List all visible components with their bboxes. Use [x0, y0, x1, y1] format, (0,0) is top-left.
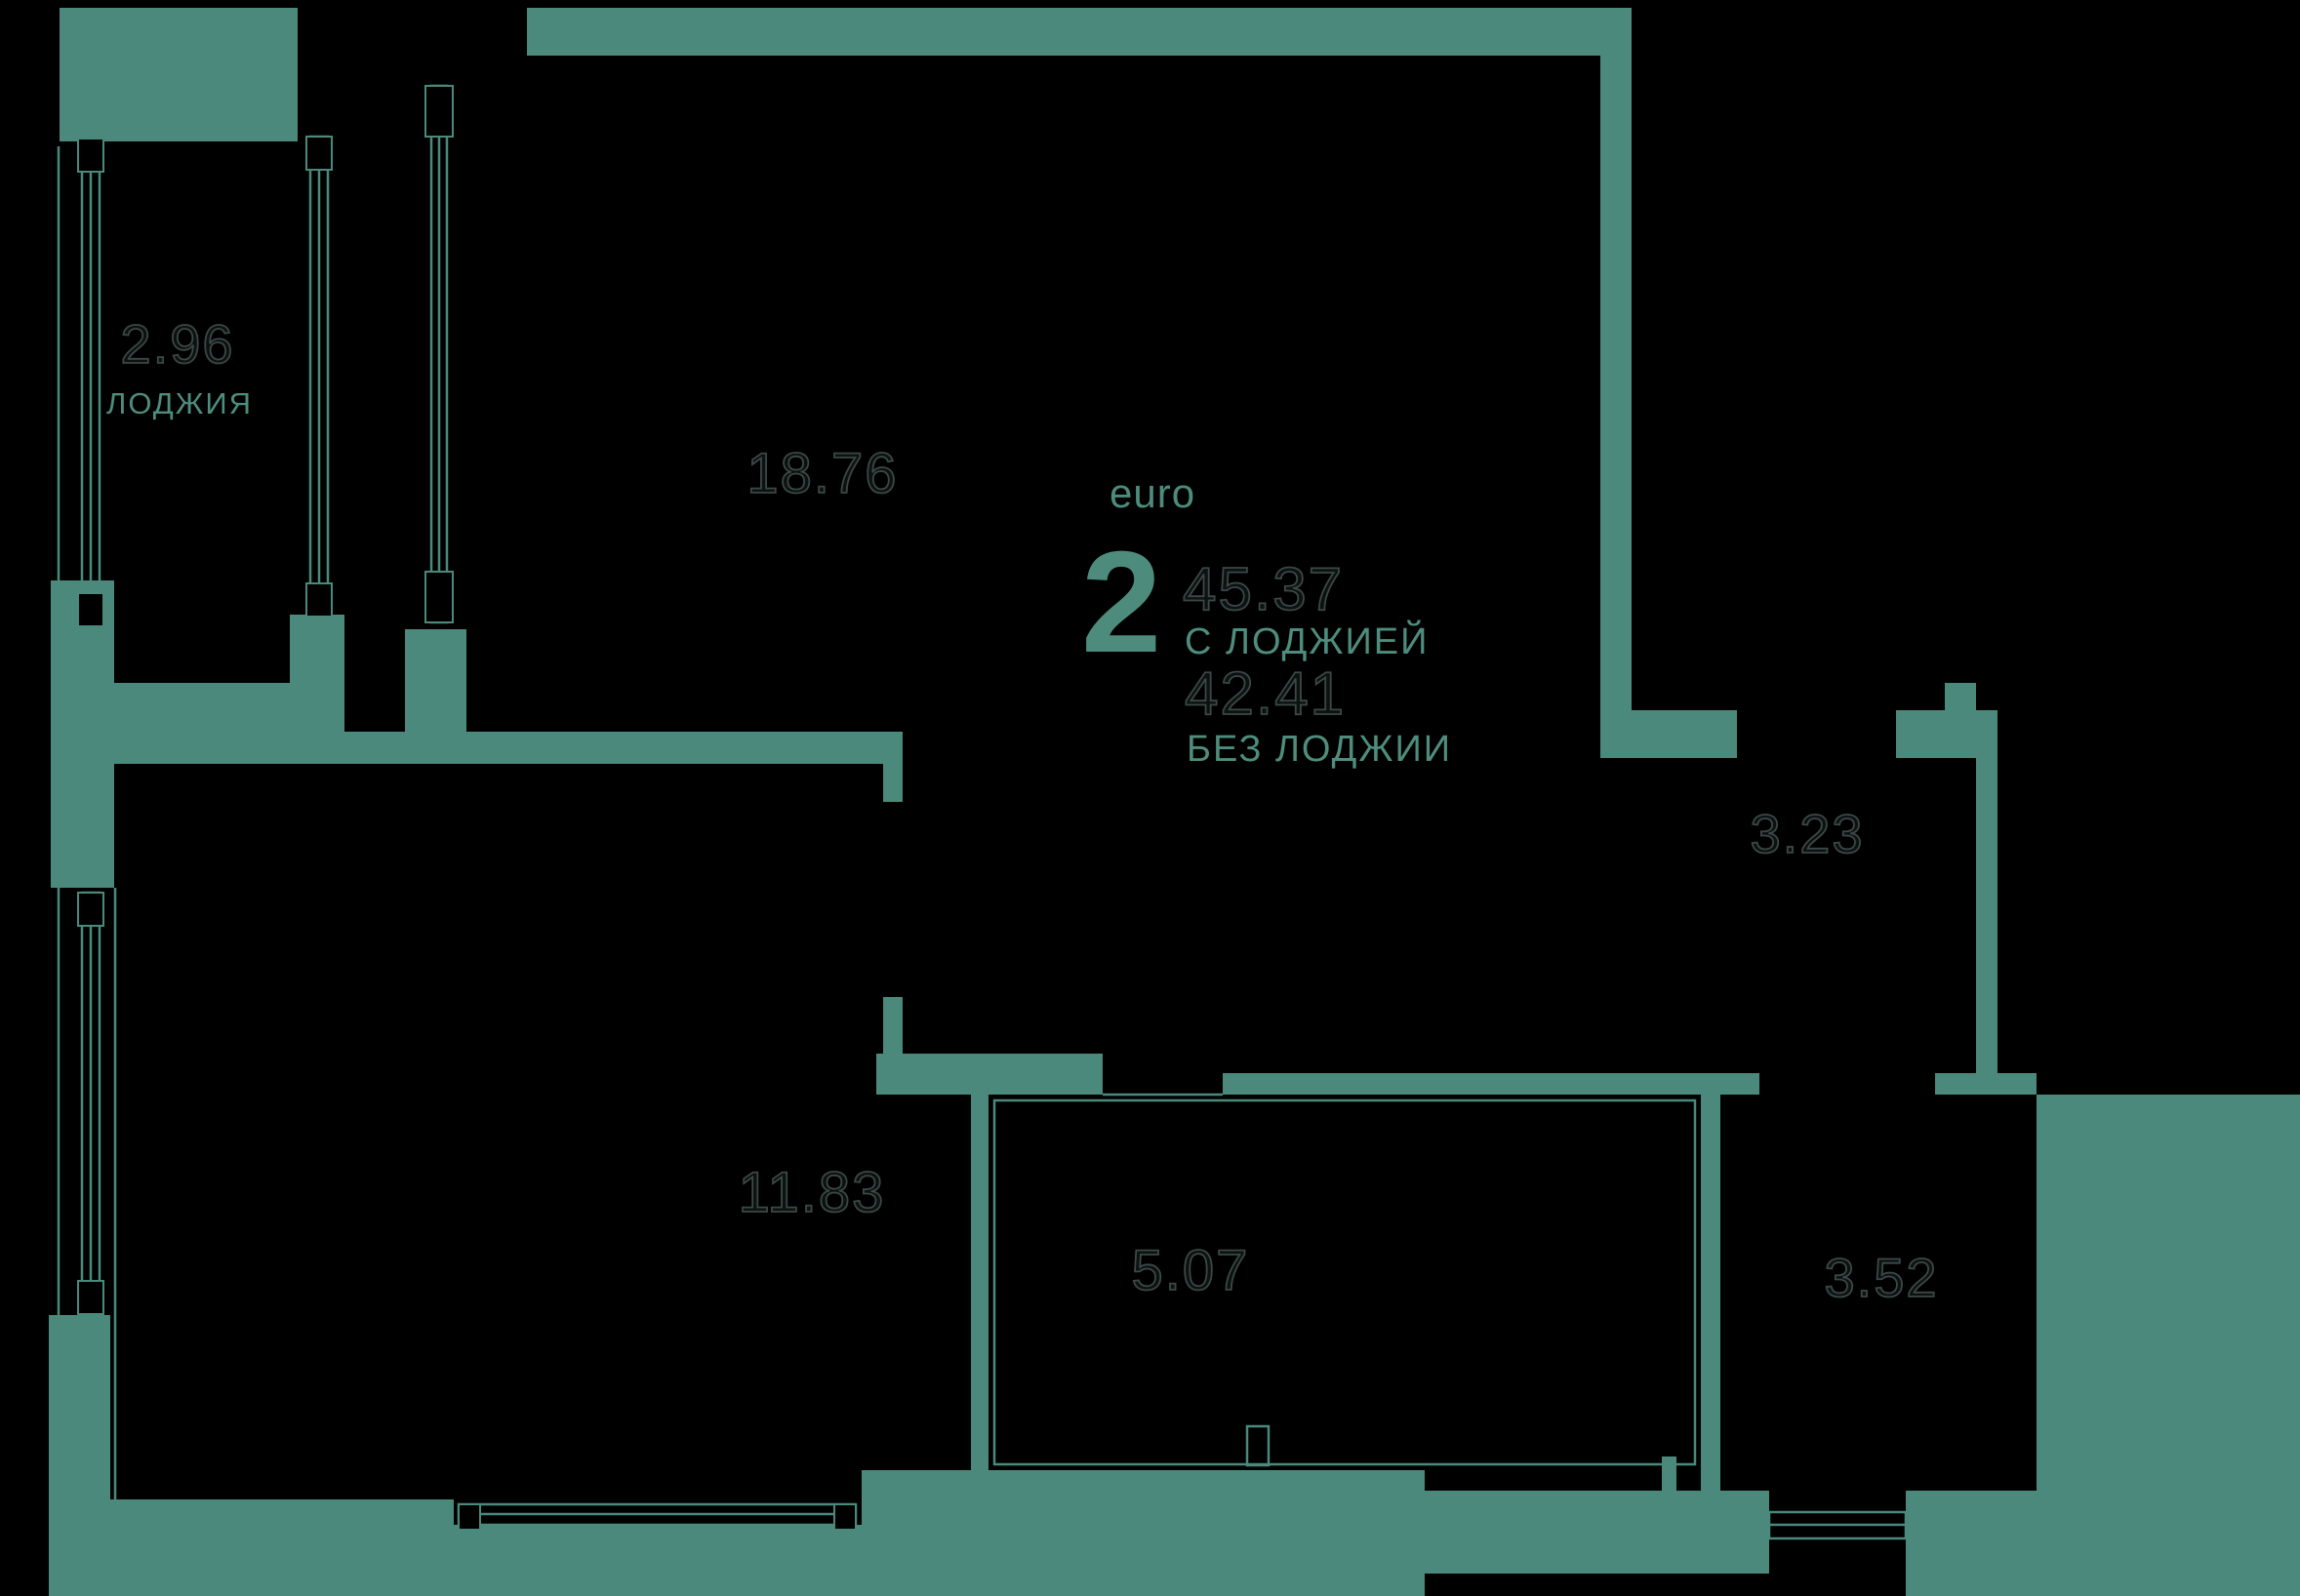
wall	[1976, 710, 1997, 1095]
area-with-loggia: 45.37	[1183, 556, 1344, 623]
window-jamb	[78, 1281, 103, 1314]
wall	[110, 1499, 454, 1596]
loggia-area: 2.96	[121, 313, 235, 375]
bathroom-area: 5.07	[1132, 1239, 1250, 1302]
window-jamb	[306, 137, 332, 170]
window-jamb	[78, 593, 103, 626]
bedroom-area: 11.83	[739, 1161, 886, 1224]
wall	[527, 8, 1632, 56]
wall	[883, 764, 903, 802]
wall	[1701, 1095, 1720, 1491]
hallway-area: 3.23	[1751, 803, 1865, 864]
floor-plan: 2.96 ЛОДЖИЯ 18.76 11.83 5.07 3.23 3.52 e…	[0, 0, 2300, 1596]
plan-background	[0, 0, 2300, 1596]
area-without-loggia: 42.41	[1185, 660, 1346, 728]
rooms-count: 2	[1081, 522, 1161, 683]
wall	[883, 997, 903, 1054]
unit-type-label: euro	[1110, 470, 1195, 516]
wall	[862, 1470, 1425, 1596]
window-jamb	[425, 86, 453, 137]
wall	[1906, 1491, 2300, 1596]
wall	[1223, 1073, 1759, 1095]
floor-plan-canvas: 2.96 ЛОДЖИЯ 18.76 11.83 5.07 3.23 3.52 e…	[0, 0, 2300, 1596]
wall	[466, 732, 903, 764]
wall	[290, 615, 344, 696]
wall	[2037, 1095, 2062, 1491]
window-jamb	[78, 893, 103, 926]
window-jamb	[306, 583, 332, 617]
wall	[1600, 710, 1737, 758]
wall	[1600, 8, 1632, 758]
window-jamb	[425, 572, 453, 622]
wall	[876, 1054, 1103, 1095]
door-jamb	[1662, 1456, 1676, 1491]
loggia-label: ЛОДЖИЯ	[106, 386, 253, 420]
wardrobe-area: 3.52	[1825, 1247, 1939, 1308]
wall	[60, 8, 298, 141]
wall	[344, 732, 405, 764]
without-loggia-label: БЕЗ ЛОДЖИИ	[1187, 729, 1452, 770]
wall	[1425, 1491, 1769, 1574]
wall	[1945, 683, 1976, 710]
window-jamb	[834, 1504, 856, 1530]
wall	[454, 1525, 862, 1596]
wall	[405, 629, 466, 764]
wall	[971, 1095, 989, 1470]
with-loggia-label: С ЛОДЖИЕЙ	[1185, 618, 1429, 662]
living-kitchen-area: 18.76	[746, 442, 898, 505]
window-jamb	[78, 139, 103, 172]
window-jamb	[459, 1504, 480, 1530]
